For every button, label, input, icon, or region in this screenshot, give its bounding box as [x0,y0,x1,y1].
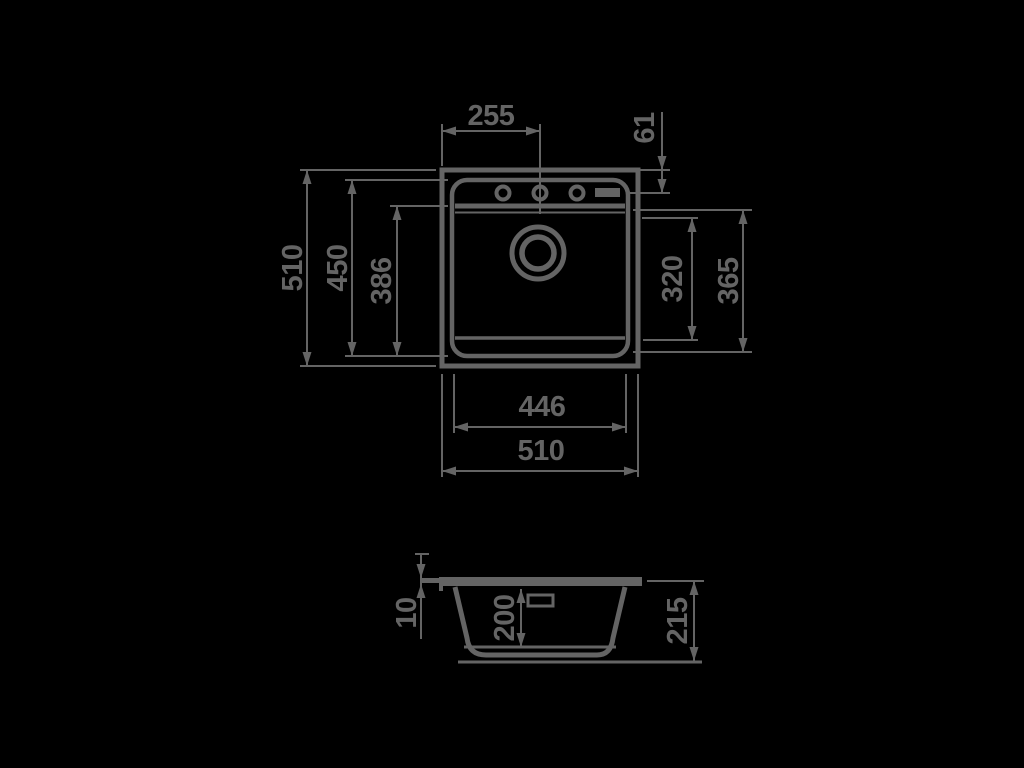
arrowhead-up [417,584,426,598]
arrowhead-down [739,338,748,352]
arrowhead-down [417,564,426,578]
arrowhead-down [688,326,697,340]
arrowhead-up [303,170,312,184]
dim-label-386: 386 [366,257,398,304]
dim-edge-to-holes: 61 [628,112,670,193]
tap-hole-right [571,187,584,200]
arrowhead-down [658,179,667,193]
overflow-opening [528,595,553,606]
arrowhead-down [303,352,312,366]
drawing-canvas: 255 61 510 450 [0,0,1024,768]
arrowhead-right [612,423,626,432]
arrowhead-up [688,218,697,232]
dim-bowl-depth: 200 [489,589,526,647]
dim-overall-depth: 215 [647,581,704,661]
dim-label-320: 320 [657,256,689,303]
tap-hole-left [497,187,510,200]
overflow-slot [595,188,620,197]
dim-label-255: 255 [468,100,515,132]
arrowhead-down [393,342,402,356]
dim-width-to-center: 255 [442,100,540,214]
dim-label-10: 10 [391,597,423,628]
side-view: 10 200 215 [391,554,704,662]
arrowhead-up [348,180,357,194]
dim-label-450: 450 [322,245,354,292]
arrowhead-left [442,127,456,136]
dim-deck-to-front: 386 [366,206,448,356]
dim-overall-height: 510 [277,170,436,366]
dim-label-215: 215 [662,597,694,644]
dim-label-365: 365 [713,257,745,304]
dim-rim-height: 10 [391,554,429,639]
bowl-profile [455,587,625,655]
dim-overall-width: 510 [442,374,638,477]
rim-profile [439,577,642,586]
arrowhead-up [393,206,402,220]
arrowhead-down [690,647,699,661]
dim-bowl-flat-height: 320 [642,218,698,340]
arrowhead-right [624,467,638,476]
dim-label-510-bottom: 510 [518,435,565,467]
arrowhead-down [348,342,357,356]
arrowhead-up [739,210,748,224]
arrowhead-down [658,156,667,170]
drain [512,227,564,279]
arrowhead-left [454,423,468,432]
dim-label-200: 200 [489,595,521,642]
sink-technical-drawing: 255 61 510 450 [0,0,1024,768]
drain-inner-ring [522,237,554,269]
dim-bowl-width: 446 [454,374,626,433]
arrowhead-left [442,467,456,476]
dim-label-61: 61 [629,112,661,144]
top-view: 255 61 510 450 [277,100,752,477]
arrowhead-right [526,127,540,136]
rim-lip [421,578,439,583]
arrowhead-up [690,581,699,595]
dim-label-510-left: 510 [277,245,309,292]
dim-label-446: 446 [519,391,566,423]
